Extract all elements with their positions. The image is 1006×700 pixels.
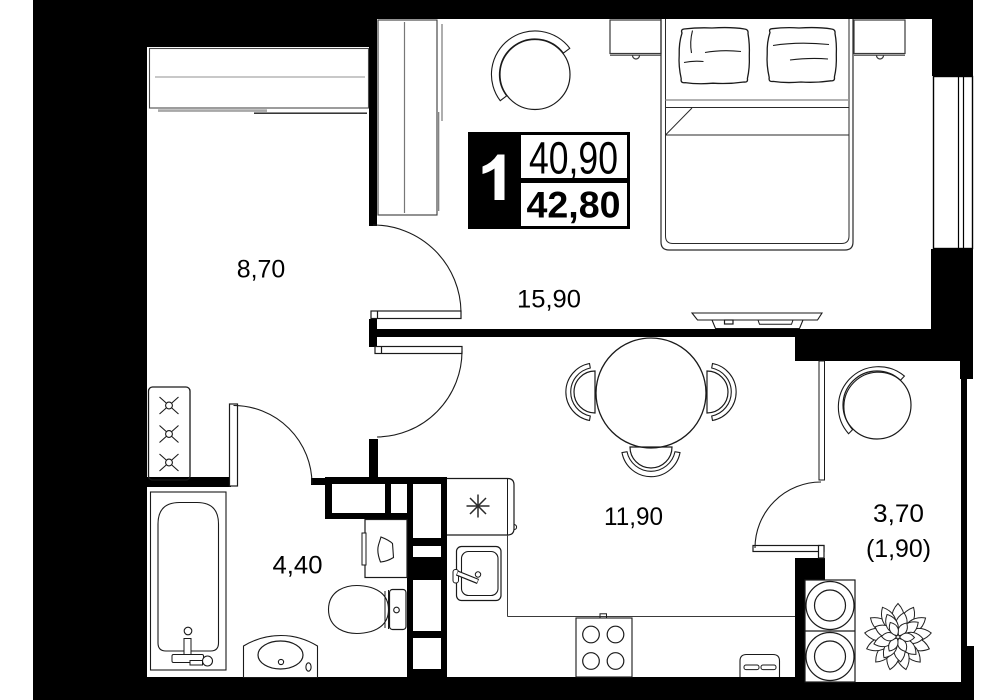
svg-text:42,80: 42,80 bbox=[527, 185, 621, 226]
svg-text:8,70: 8,70 bbox=[237, 256, 286, 284]
svg-text:15,90: 15,90 bbox=[517, 286, 581, 314]
svg-text:11,90: 11,90 bbox=[604, 503, 663, 531]
svg-text:4,40: 4,40 bbox=[273, 552, 323, 580]
svg-text:(1,90): (1,90) bbox=[866, 535, 931, 563]
svg-text:3,70: 3,70 bbox=[873, 500, 924, 528]
svg-text:40,90: 40,90 bbox=[529, 133, 618, 184]
